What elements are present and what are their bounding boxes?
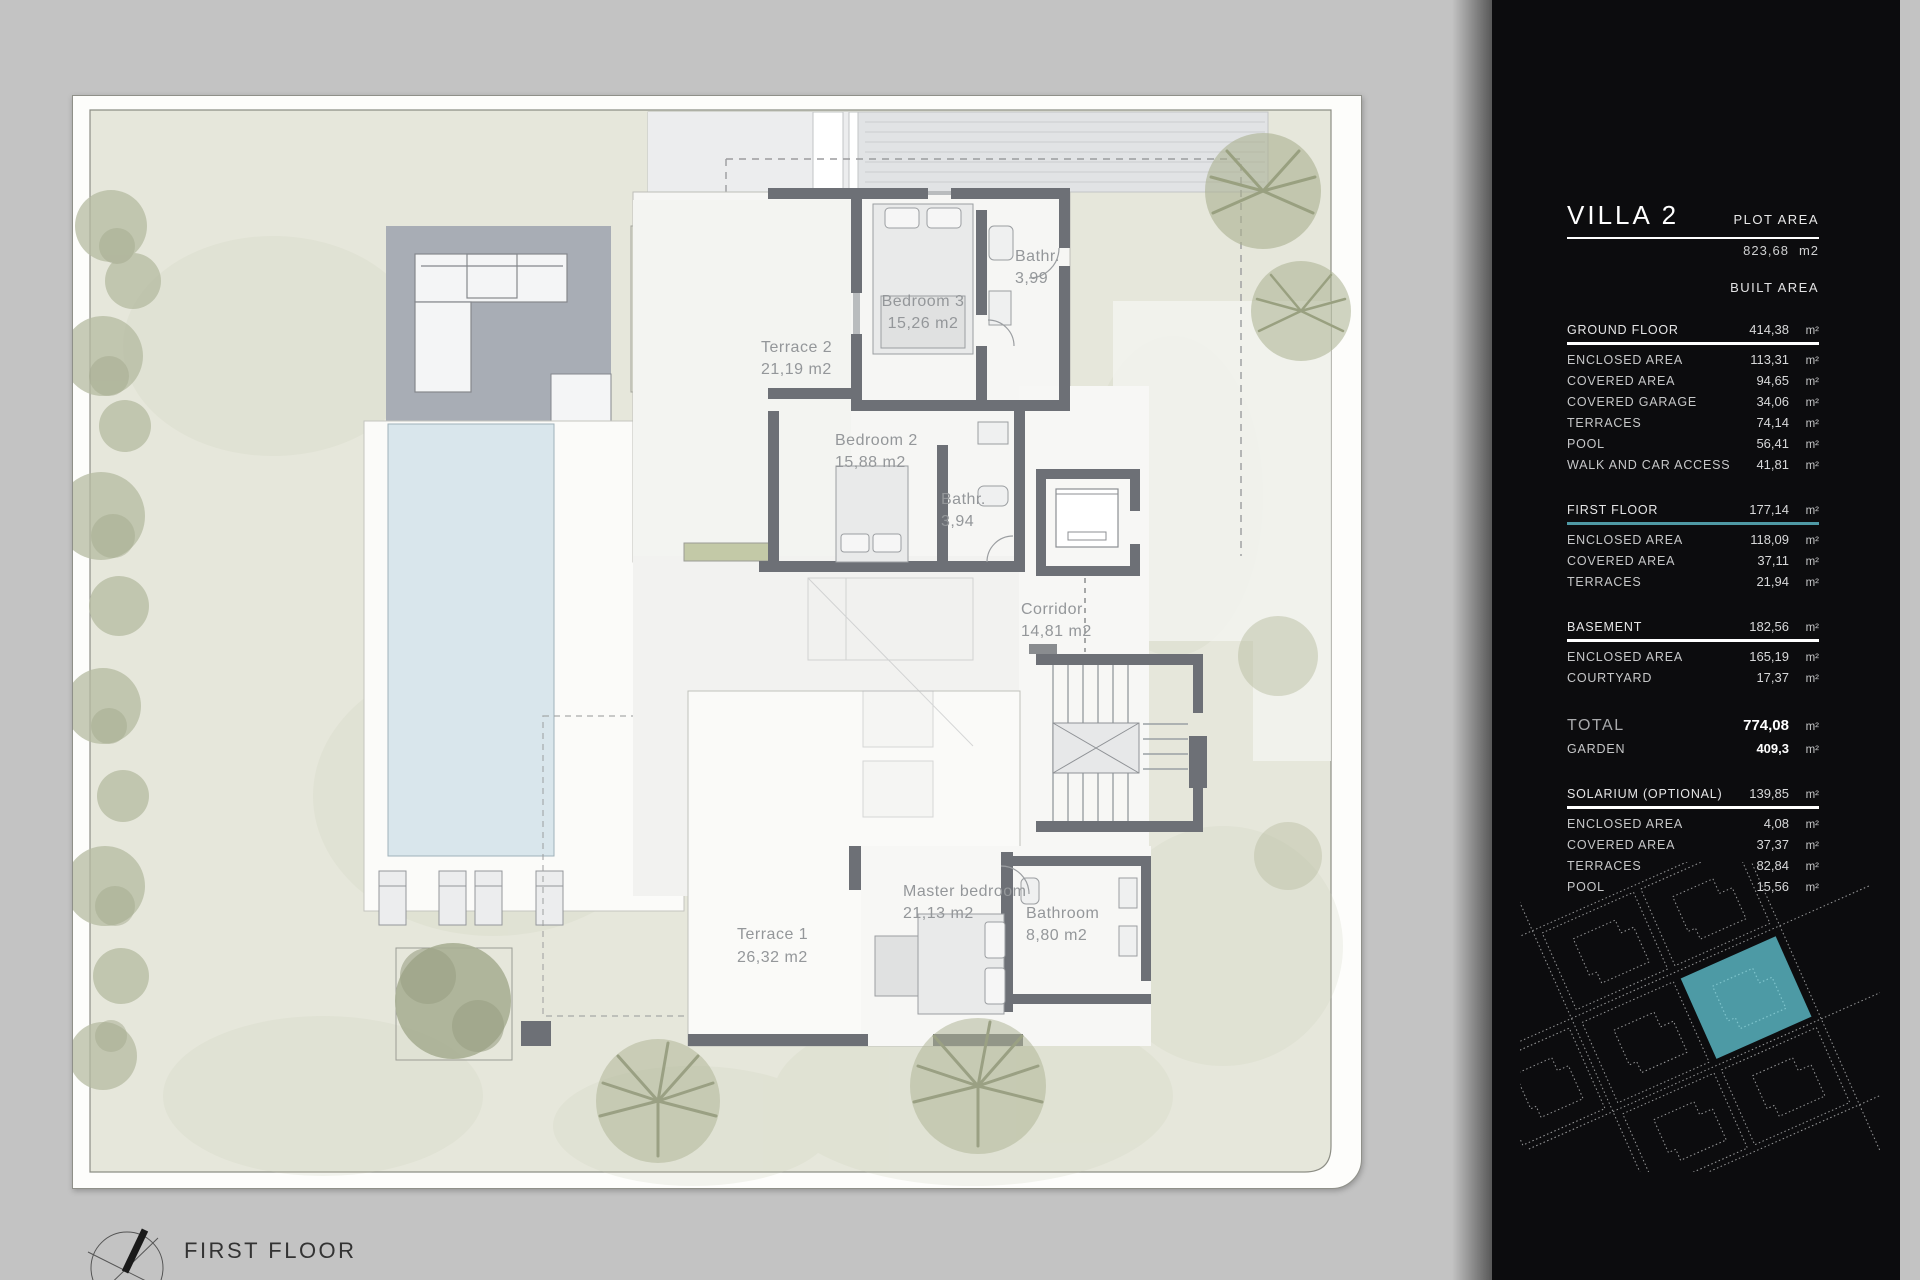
villa-header: VILLA 2 PLOT AREA (1567, 200, 1819, 239)
group-header-unit: m² (1789, 325, 1819, 337)
room-area-terrace1: 26,32 m2 (737, 949, 808, 966)
room-area-corridor: 14,81 m2 (1021, 623, 1092, 640)
panel-shadow (1452, 0, 1492, 1280)
group-header-label: GROUND FLOOR (1567, 323, 1733, 337)
group-header-unit: m² (1789, 789, 1819, 801)
group-first-floor: FIRST FLOOR 177,14 m² ENCLOSED AREA 118,… (1567, 499, 1819, 592)
built-area-label: BUILT AREA (1567, 280, 1819, 295)
room-label-bath1: Bathr. (1015, 248, 1060, 265)
planter-strip (684, 543, 770, 561)
area-row: COVERED AREA 37,11 m² (1567, 550, 1819, 571)
elevator (1056, 489, 1118, 547)
area-row: TERRACES 74,14 m² (1567, 412, 1819, 433)
group-header-label: BASEMENT (1567, 620, 1733, 634)
page: { "drawing": { "floor_label": "FIRST FLO… (0, 0, 1920, 1280)
area-row: ENCLOSED AREA 4,08 m² (1567, 813, 1819, 834)
group-header-value: 182,56 (1733, 619, 1789, 634)
total-row: TOTAL 774,08 m² (1567, 714, 1819, 738)
room-label-bedroom3: Bedroom 3 (882, 293, 965, 310)
group-header-value: 414,38 (1733, 322, 1789, 337)
group-header-unit: m² (1789, 505, 1819, 517)
room-area-bath2: 3,94 (941, 513, 974, 530)
plot-area-label: PLOT AREA (1733, 212, 1819, 227)
pool (388, 424, 554, 856)
plot-area-value: 823,68 (1743, 243, 1789, 258)
garden-tree-planter (395, 943, 512, 1060)
room-area-master: 21,13 m2 (903, 905, 974, 922)
floor-title: FIRST FLOOR (184, 1238, 357, 1264)
area-row: ENCLOSED AREA 165,19 m² (1567, 646, 1819, 667)
group-ground-floor: GROUND FLOOR 414,38 m² ENCLOSED AREA 113… (1567, 319, 1819, 475)
group-header-label: FIRST FLOOR (1567, 503, 1733, 517)
group-header-label: SOLARIUM (OPTIONAL) (1567, 787, 1733, 801)
group-header: SOLARIUM (OPTIONAL) 139,85 m² (1567, 783, 1819, 809)
group-header-value: 177,14 (1733, 502, 1789, 517)
room-label-terrace1: Terrace 1 (737, 926, 808, 943)
area-row: WALK AND CAR ACCESS 41,81 m² (1567, 454, 1819, 475)
north-compass-icon (80, 1200, 200, 1280)
floorplan-sheet: Bedroom 3 15,26 m2 Bathr. 3,99 Terrace 2… (72, 95, 1362, 1189)
area-row: COVERED GARAGE 34,06 m² (1567, 391, 1819, 412)
room-label-bathroom: Bathroom (1026, 905, 1099, 922)
room-area-terrace2: 21,19 m2 (761, 361, 832, 378)
floorplan-drawing: Bedroom 3 15,26 m2 Bathr. 3,99 Terrace 2… (73, 96, 1361, 1188)
room-label-terrace2: Terrace 2 (761, 339, 832, 356)
garden-row: GARDEN 409,3 m² (1567, 738, 1819, 759)
room-area-bedroom3: 15,26 m2 (888, 315, 959, 332)
area-row: POOL 56,41 m² (1567, 433, 1819, 454)
area-row: ENCLOSED AREA 113,31 m² (1567, 349, 1819, 370)
area-row: COVERED AREA 37,37 m² (1567, 834, 1819, 855)
area-row: TERRACES 21,94 m² (1567, 571, 1819, 592)
plot-area-unit: m2 (1799, 243, 1819, 258)
room-area-bathroom: 8,80 m2 (1026, 927, 1087, 944)
neighbor-roof (648, 112, 1268, 192)
group-header: BASEMENT 182,56 m² (1567, 616, 1819, 642)
area-row: COVERED AREA 94,65 m² (1567, 370, 1819, 391)
room-label-bedroom2: Bedroom 2 (835, 432, 918, 449)
room-label-master: Master bedroom (903, 883, 1027, 900)
group-basement: BASEMENT 182,56 m² ENCLOSED AREA 165,19 … (1567, 616, 1819, 688)
room-area-bath1: 3,99 (1015, 270, 1048, 287)
plot-area-value-row: 823,68 m2 (1567, 243, 1819, 258)
villa-title: VILLA 2 (1567, 200, 1679, 231)
group-header: GROUND FLOOR 414,38 m² (1567, 319, 1819, 345)
area-row: ENCLOSED AREA 118,09 m² (1567, 529, 1819, 550)
room-area-bedroom2: 15,88 m2 (835, 454, 906, 471)
area-summary-panel: VILLA 2 PLOT AREA 823,68 m2 BUILT AREA G… (1492, 0, 1900, 1280)
group-header-highlighted: FIRST FLOOR 177,14 m² (1567, 499, 1819, 525)
room-label-corridor: Corridor (1021, 601, 1083, 618)
totals-block: TOTAL 774,08 m² GARDEN 409,3 m² (1567, 714, 1819, 759)
site-keyplan (1520, 862, 1880, 1172)
area-row: COURTYARD 17,37 m² (1567, 667, 1819, 688)
corridor-symbol (1029, 644, 1057, 654)
group-header-unit: m² (1789, 622, 1819, 634)
group-header-value: 139,85 (1733, 786, 1789, 801)
room-label-bath2: Bathr. (941, 491, 986, 508)
